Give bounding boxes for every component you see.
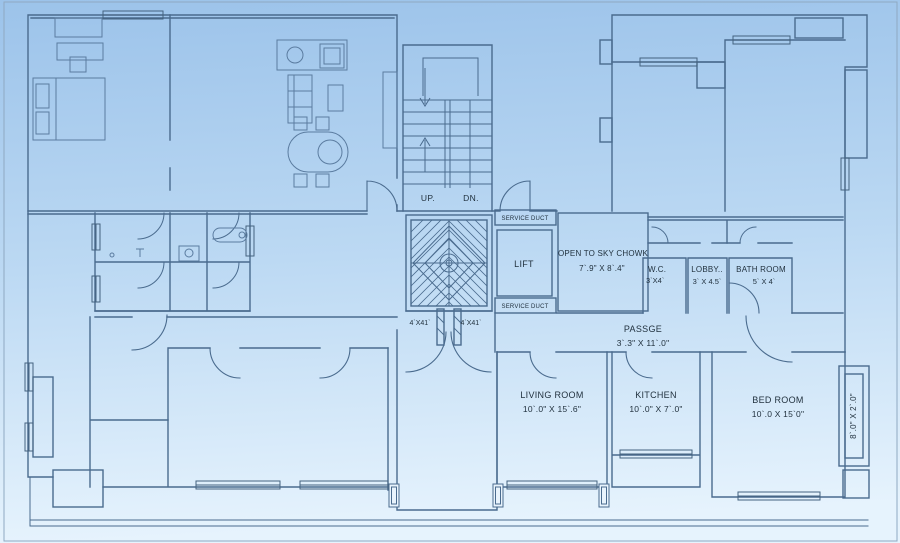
room-label-lift: LIFT [514,259,534,269]
dim-label-lobby: 3` X 4.5` [693,277,722,286]
label-up: UP. [421,193,435,203]
room-label-bath: BATH ROOM [736,265,786,274]
dim-label-right-balcony: 8`.0" X 2`.0" [849,393,858,439]
dim-label-duct-right: 4`X41` [460,320,481,327]
label-dn: DN. [463,193,479,203]
dim-label-bedroom: 10`.0 X 15`0" [752,409,804,419]
room-label-kitchen: KITCHEN [635,390,677,400]
room-label-living: LIVING ROOM [520,390,583,400]
floor-plan-canvas: UP. DN. SERVICE DUCT SERVICE DUCT LIFT O… [0,0,900,543]
room-label-bedroom: BED ROOM [752,395,803,405]
room-label-chowk: OPEN TO SKY CHOWK [558,249,649,258]
dim-label-bath: 5` X 4` [753,277,776,286]
dim-label-chowk: 7`.9" X 8`.4" [579,264,625,273]
dim-label-living: 10`.0" X 15`.6" [523,404,581,414]
room-label-wc: W.C. [648,265,666,274]
label-service-duct-top: SERVICE DUCT [502,216,549,222]
floor-plan-page: UP. DN. SERVICE DUCT SERVICE DUCT LIFT O… [0,0,900,543]
dim-label-wc: 3`X4` [646,276,664,285]
dim-label-kitchen: 10`.0" X 7`.0" [629,404,682,414]
room-label-passage: PASSGE [624,324,662,334]
room-label-lobby: LOBBY.. [691,265,723,274]
dim-label-duct-left: 4`X41` [409,320,430,327]
dim-label-passage: 3`.3" X 11`.0" [617,338,670,348]
label-service-duct-bottom: SERVICE DUCT [502,304,549,310]
